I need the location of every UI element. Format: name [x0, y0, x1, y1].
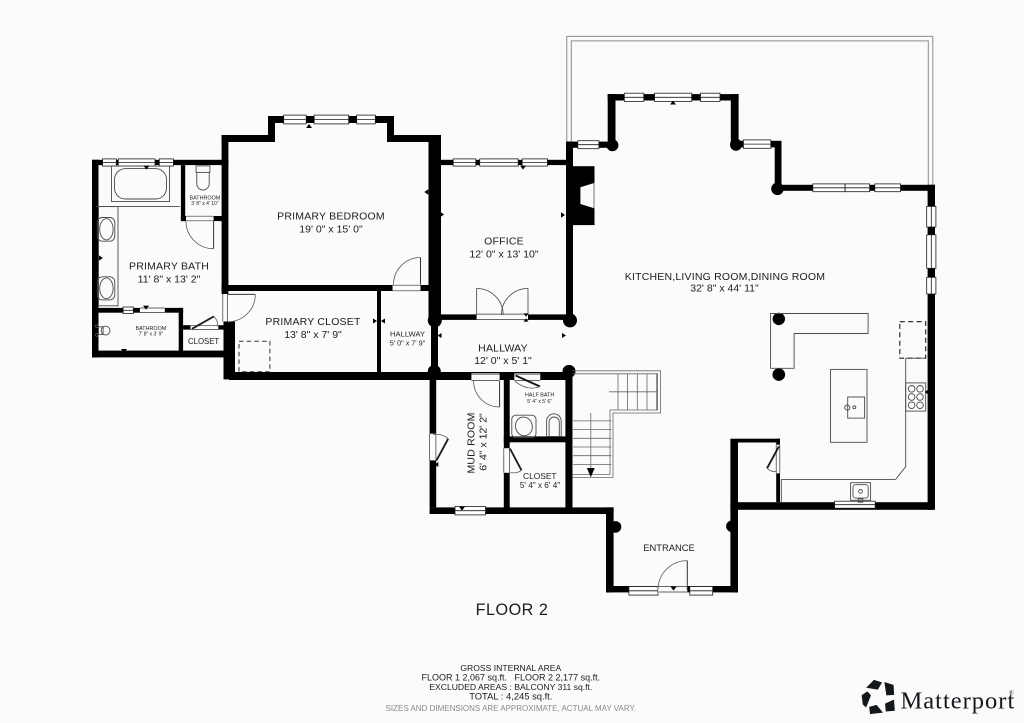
- svg-text:PRIMARY BATH: PRIMARY BATH: [129, 261, 209, 273]
- svg-text:12' 0" x 5' 1": 12' 0" x 5' 1": [474, 355, 532, 367]
- svg-text:HALF BATH: HALF BATH: [525, 393, 554, 399]
- svg-text:®: ®: [1009, 690, 1014, 697]
- svg-text:GROSS INTERNAL AREA: GROSS INTERNAL AREA: [460, 663, 561, 673]
- svg-text:5' 4" x 5' 6": 5' 4" x 5' 6": [527, 399, 552, 405]
- svg-text:HALLWAY: HALLWAY: [390, 330, 425, 339]
- svg-text:KITCHEN,LIVING ROOM,DINING ROO: KITCHEN,LIVING ROOM,DINING ROOM: [625, 271, 825, 283]
- svg-text:MUD ROOM: MUD ROOM: [466, 412, 478, 473]
- svg-text:CLOSET: CLOSET: [523, 471, 557, 481]
- svg-text:12' 0" x 13' 10": 12' 0" x 13' 10": [469, 248, 539, 260]
- svg-text:OFFICE: OFFICE: [484, 236, 524, 248]
- svg-text:FLOOR 1 2,067 sq.ft. FLOOR 2: FLOOR 1 2,067 sq.ft. FLOOR 2 2,177 sq.ft…: [422, 673, 601, 683]
- svg-text:CLOSET: CLOSET: [188, 337, 219, 346]
- svg-text:5' 0" x 7' 9": 5' 0" x 7' 9": [390, 339, 426, 348]
- svg-text:PRIMARY BEDROOM: PRIMARY BEDROOM: [277, 211, 385, 223]
- svg-text:13' 8" x 7' 9": 13' 8" x 7' 9": [284, 329, 342, 341]
- svg-text:32' 8" x 44' 11": 32' 8" x 44' 11": [690, 283, 759, 295]
- svg-text:SIZES AND DIMENSIONS ARE APPRO: SIZES AND DIMENSIONS ARE APPROXIMATE, AC…: [386, 704, 636, 713]
- svg-text:5' 4" x 6' 4": 5' 4" x 6' 4": [520, 481, 560, 490]
- svg-text:3' 8" x 4' 10": 3' 8" x 4' 10": [191, 201, 219, 207]
- svg-text:7' 8" x 3' 9": 7' 8" x 3' 9": [139, 332, 164, 338]
- svg-text:19' 0" x 15' 0": 19' 0" x 15' 0": [299, 224, 363, 236]
- svg-text:TOTAL : 4,245 sq.ft.: TOTAL : 4,245 sq.ft.: [469, 691, 552, 702]
- svg-text:PRIMARY CLOSET: PRIMARY CLOSET: [265, 316, 361, 328]
- svg-text:ENTRANCE: ENTRANCE: [643, 542, 695, 553]
- svg-text:6' 4" x 12' 2": 6' 4" x 12' 2": [478, 413, 490, 471]
- svg-text:11' 8" x 13' 2": 11' 8" x 13' 2": [138, 274, 201, 286]
- svg-text:Matterport: Matterport: [901, 688, 1016, 715]
- svg-text:FLOOR 2: FLOOR 2: [476, 601, 549, 619]
- svg-text:HALLWAY: HALLWAY: [478, 343, 528, 355]
